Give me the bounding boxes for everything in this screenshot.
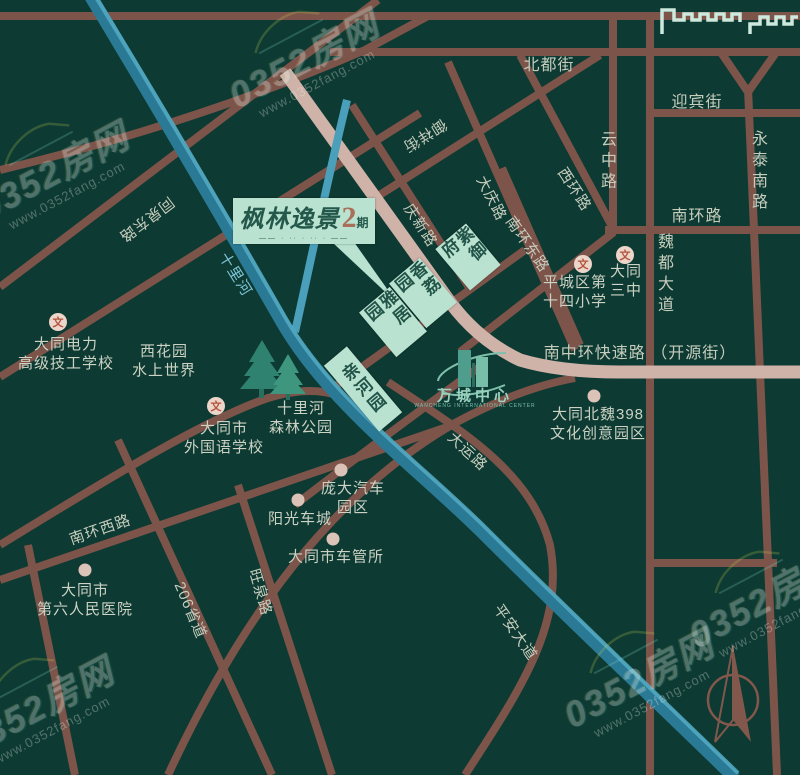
place-label-11: 大同北魏398文化创意园区 — [550, 405, 646, 443]
poi-dot-marker — [292, 494, 305, 507]
school-icon: 文 — [574, 255, 592, 273]
place-label-line: 阳光车城 — [268, 510, 332, 529]
place-label-line: 大同市 — [184, 419, 264, 438]
road-label-3: 南环路 — [671, 202, 722, 226]
place-label-2: 西花园水上世界 — [132, 342, 196, 380]
project-name: 枫林逸景 — [239, 199, 339, 234]
place-label-10: 大同三中 — [610, 262, 642, 300]
project-logo-title: 枫林逸景 2 期 — [239, 199, 368, 234]
road-label-5: 永泰南路 — [745, 130, 769, 214]
project-tagline: —— · ·· · ·· · —— — [259, 235, 349, 243]
place-label-line: 水上世界 — [132, 361, 196, 380]
location-map: 枫林逸景 2 期 —— · ·· · ·· · —— 万城中心 WANCHENG… — [0, 0, 800, 775]
place-label-line: 大同市车管所 — [288, 548, 384, 567]
project-phase-suffix: 期 — [356, 214, 368, 231]
place-label-1: 大同电力高级技工学校 — [18, 335, 114, 373]
poi-dot-marker — [79, 564, 92, 577]
place-label-line: 大同电力 — [18, 335, 114, 354]
place-label-8: 大同市第六人民医院 — [37, 581, 133, 619]
poi-dot-marker — [327, 533, 340, 546]
road-label-2: 迎宾街 — [671, 88, 722, 112]
place-label-line: 三中 — [610, 281, 642, 300]
road-yongtai-fork — [722, 54, 775, 92]
school-icon-glyph: 文 — [578, 256, 589, 272]
place-label-line: 第六人民医院 — [37, 600, 133, 619]
map-base-layer — [0, 0, 800, 775]
place-label-3: 十里河森林公园 — [269, 399, 333, 437]
compass-icon — [708, 646, 758, 742]
school-icon-glyph: 文 — [211, 398, 222, 414]
road-label-7: 南中环快速路 （开源街） — [544, 339, 736, 363]
place-label-line: 森林公园 — [269, 418, 333, 437]
place-label-6: 阳光车城 — [268, 510, 332, 529]
road-left-edge — [28, 545, 75, 775]
wancheng-center-subtitle: WANCHENG INTERNATIONAL CENTER — [414, 403, 535, 409]
place-label-4: 大同市外国语学校 — [184, 419, 264, 457]
place-label-9: 平城区第十四小学 — [543, 273, 607, 311]
place-label-line: 高级技工学校 — [18, 354, 114, 373]
school-icon-glyph: 文 — [620, 247, 631, 263]
place-label-7: 大同市车管所 — [288, 548, 384, 567]
place-label-line: 庞大汽车 — [321, 479, 385, 498]
road-network — [0, 0, 800, 775]
road-label-6: 魏都大道 — [651, 233, 675, 317]
project-logo: 枫林逸景 2 期 —— · ·· · ·· · —— — [233, 198, 375, 244]
place-label-line: 西花园 — [132, 342, 196, 361]
project-phase-number: 2 — [341, 205, 356, 231]
place-label-line: 大同 — [610, 262, 642, 281]
place-label-line: 十里河 — [269, 399, 333, 418]
poi-dot-marker — [335, 464, 348, 477]
school-icon: 文 — [616, 246, 634, 264]
place-label-line: 大同市 — [37, 581, 133, 600]
place-label-line: 大同北魏398 — [550, 405, 646, 424]
road-label-1: 北都街 — [523, 51, 574, 75]
school-icon: 文 — [49, 313, 67, 331]
place-label-line: 文化创意园区 — [550, 424, 646, 443]
place-label-line: 十四小学 — [543, 292, 607, 311]
school-icon-glyph: 文 — [53, 314, 64, 330]
school-icon: 文 — [207, 397, 225, 415]
road-label-4: 云中路 — [594, 131, 618, 194]
place-label-line: 外国语学校 — [184, 438, 264, 457]
place-label-line: 平城区第 — [543, 273, 607, 292]
poi-dot-marker — [588, 390, 601, 403]
